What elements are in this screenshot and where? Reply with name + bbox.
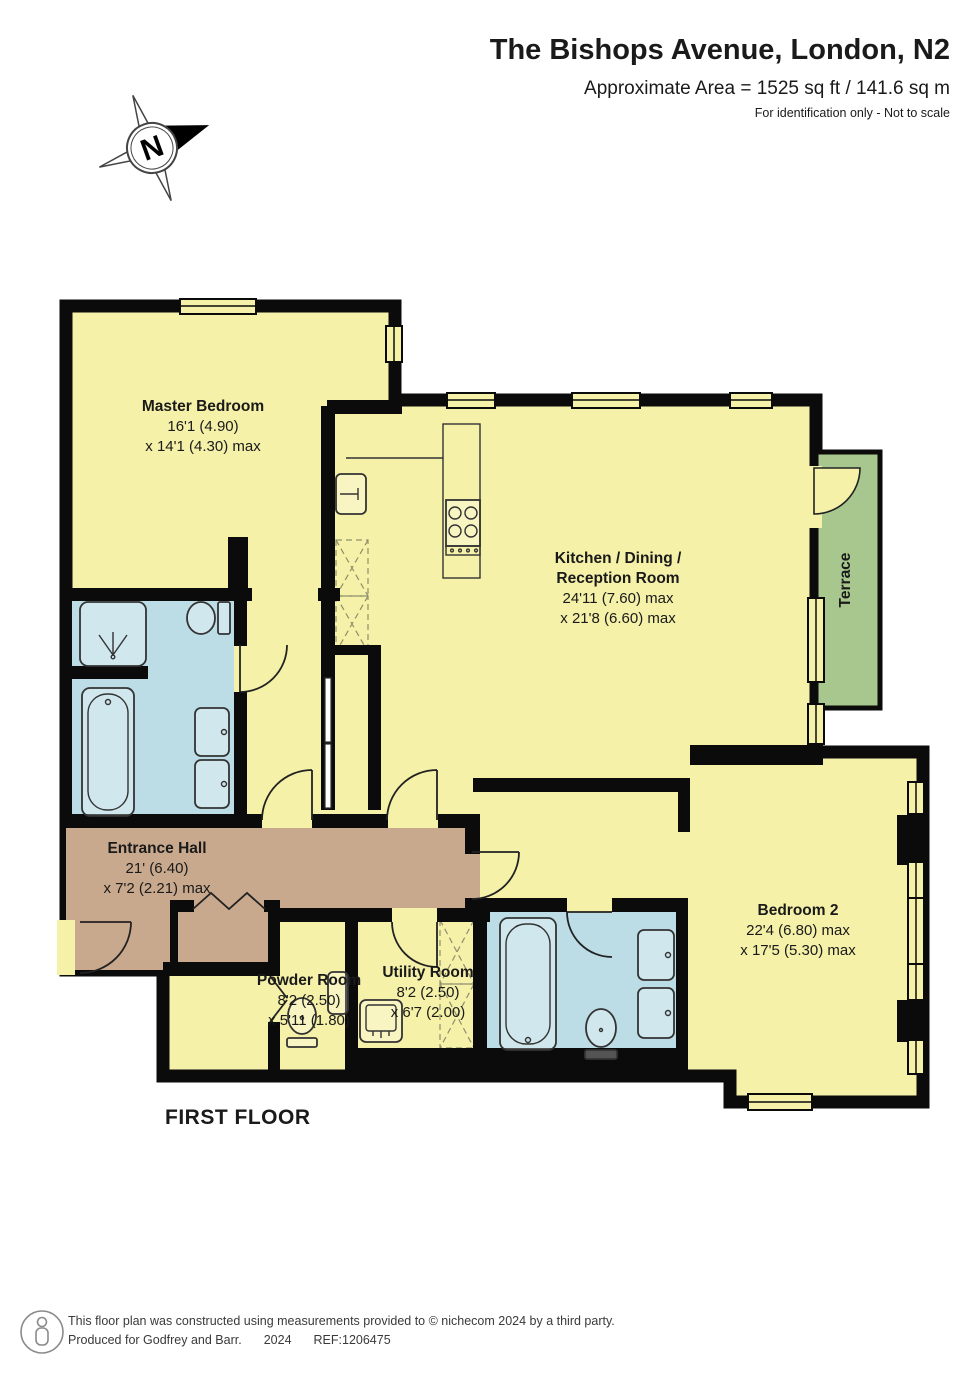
room-label-powder-room: Powder Room 8'2 (2.50) x 5'11 (1.80) <box>257 971 361 1031</box>
entrance-door-gap <box>57 920 75 975</box>
room-dimension: x 6'7 (2.00) <box>382 1003 473 1023</box>
sink-icon <box>195 760 229 808</box>
room-dimension: 16'1 (4.90) <box>142 417 264 437</box>
person-icon <box>21 1311 63 1353</box>
sink-icon <box>195 708 229 756</box>
sliding-door <box>325 678 331 742</box>
room-name: Master Bedroom <box>142 397 264 417</box>
room-name: Entrance Hall <box>103 839 210 859</box>
room-label-terrace: Terrace <box>836 553 856 608</box>
sink-icon <box>638 988 674 1038</box>
floor-title: FIRST FLOOR <box>165 1106 311 1130</box>
room-dimension: 22'4 (6.80) max <box>740 921 855 941</box>
room-dimension: 8'2 (2.50) <box>257 991 361 1011</box>
room-label-utility-room: Utility Room 8'2 (2.50) x 6'7 (2.00) <box>382 963 473 1023</box>
room-dimension: 24'11 (7.60) max <box>555 589 682 609</box>
sink-icon <box>638 930 674 980</box>
room-dimension: 21' (6.40) <box>103 859 210 879</box>
toilet-icon <box>585 1009 617 1059</box>
room-label-kitchen-dining-reception: Kitchen / Dining / Reception Room 24'11 … <box>555 549 682 629</box>
footer-year: 2024 <box>264 1333 292 1347</box>
room-name: Bedroom 2 <box>740 901 855 921</box>
room-name: Terrace <box>836 553 856 608</box>
room-dimension: x 21'8 (6.60) max <box>555 609 682 629</box>
footer-reference: REF:1206475 <box>314 1333 391 1347</box>
room-dimension: 8'2 (2.50) <box>382 983 473 1003</box>
room-name: Utility Room <box>382 963 473 983</box>
footer-disclaimer: This floor plan was constructed using me… <box>68 1314 615 1328</box>
hob-icon <box>446 500 480 555</box>
compass-icon: N <box>80 75 227 220</box>
room-dimension: x 14'1 (4.30) max <box>142 437 264 457</box>
room-dimension: x 7'2 (2.21) max <box>103 879 210 899</box>
floorplan-page: The Bishops Avenue, London, N2 Approxima… <box>0 0 980 1385</box>
bathtub-icon <box>82 688 134 816</box>
room-dimension: x 5'11 (1.80) <box>257 1011 361 1031</box>
floor-plan-drawing: N <box>0 0 980 1385</box>
room-label-entrance-hall: Entrance Hall 21' (6.40) x 7'2 (2.21) ma… <box>103 839 210 899</box>
room-name: Reception Room <box>555 569 682 589</box>
footer-produced-for: Produced for Godfrey and Barr. <box>68 1333 242 1347</box>
bathtub-icon <box>500 918 556 1050</box>
room-dimension: x 17'5 (5.30) max <box>740 941 855 961</box>
toilet-icon <box>187 602 230 634</box>
room-name: Powder Room <box>257 971 361 991</box>
room-label-master-bedroom: Master Bedroom 16'1 (4.90) x 14'1 (4.30)… <box>142 397 264 457</box>
footer-credit: Produced for Godfrey and Barr.2024REF:12… <box>68 1333 413 1347</box>
room-name: Kitchen / Dining / <box>555 549 682 569</box>
room-label-bedroom-2: Bedroom 2 22'4 (6.80) max x 17'5 (5.30) … <box>740 901 855 961</box>
sliding-door <box>325 744 331 808</box>
